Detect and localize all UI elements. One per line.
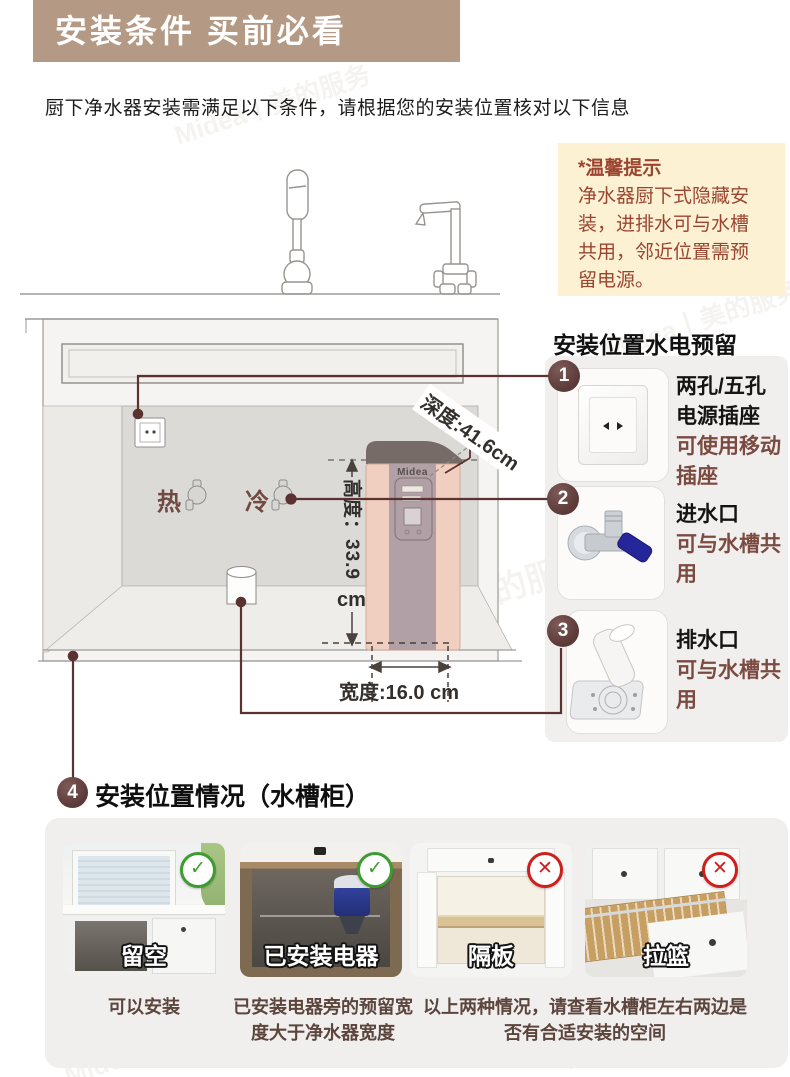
case-card-shelf: ✕ 隔板	[410, 843, 572, 977]
section4-heading: 安装位置情况（水槽柜）	[95, 777, 370, 813]
check-icon: ✓	[180, 852, 216, 888]
tip-box: *温馨提示 净水器厨下式隐藏安装，进排水可与水槽共用，邻近位置需预留电源。	[558, 143, 785, 296]
height-unit-label: cm	[337, 589, 366, 612]
case-label: 已安装电器	[240, 937, 402, 971]
check-icon: ✓	[357, 852, 393, 888]
page: Midea丨美的服务 Midea丨美的服务 Midea丨美的服务 Midea丨美…	[0, 0, 790, 1077]
item1-note: 可使用移动插座	[676, 432, 782, 492]
height-dimension-label: 高度：33.9	[340, 479, 367, 580]
cross-icon: ✕	[527, 852, 563, 888]
caption-appliance: 已安装电器旁的预留宽度大于净水器宽度	[228, 994, 418, 1046]
case-label: 拉篮	[585, 937, 747, 971]
power-outlet-icon	[578, 385, 648, 465]
cabinet-outlet	[135, 418, 165, 447]
item1-name: 两孔/五孔电源插座	[676, 372, 782, 432]
item2-note: 可与水槽共用	[676, 530, 782, 590]
tip-body: 净水器厨下式隐藏安装，进排水可与水槽共用，邻近位置需预留电源。	[578, 183, 765, 295]
case-label: 隔板	[410, 937, 572, 971]
item3-name: 排水口	[676, 626, 782, 656]
case-card-appliance: ✓ 已安装电器	[240, 843, 402, 977]
drain-cylinder	[227, 567, 256, 605]
cold-water-label: 冷	[245, 482, 269, 517]
hot-cold-valves	[186, 480, 292, 510]
utility-panel-heading: 安装位置水电预留	[553, 326, 737, 360]
case-card-basket: ✕ 拉篮	[585, 843, 747, 977]
page-title: 安装条件 买前必看	[33, 0, 460, 62]
item3-note: 可与水槽共用	[676, 656, 782, 716]
intro-text: 厨下净水器安装需满足以下条件，请根据您的安装位置核对以下信息	[45, 93, 630, 120]
caption-can-install: 可以安装	[63, 994, 225, 1020]
floor-drain-icon	[567, 611, 667, 733]
tip-title: *温馨提示	[578, 153, 765, 180]
caption-two-cases: 以上两种情况，请查看水槽柜左右两边是否有合适安装的空间	[415, 994, 755, 1046]
case-card-empty: ✓ 留空	[63, 843, 225, 977]
item2-name: 进水口	[676, 500, 782, 530]
case-label: 留空	[63, 937, 225, 971]
callout-badge-3: 3	[547, 615, 579, 647]
floor-drain-image-box	[566, 610, 668, 734]
callout-badge-4: 4	[57, 777, 88, 808]
purifier-brand-logo: Midea	[389, 467, 436, 478]
faucet-purifier	[416, 202, 476, 294]
callout-badge-1: 1	[548, 360, 580, 392]
cross-icon: ✕	[702, 852, 738, 888]
depth-dimension-label: 深度:41.6cm	[412, 384, 530, 480]
faucet-main	[282, 170, 312, 294]
hot-water-label: 热	[157, 482, 181, 517]
callout-badge-2: 2	[547, 483, 579, 515]
width-dimension-label: 宽度:16.0 cm	[337, 676, 461, 705]
